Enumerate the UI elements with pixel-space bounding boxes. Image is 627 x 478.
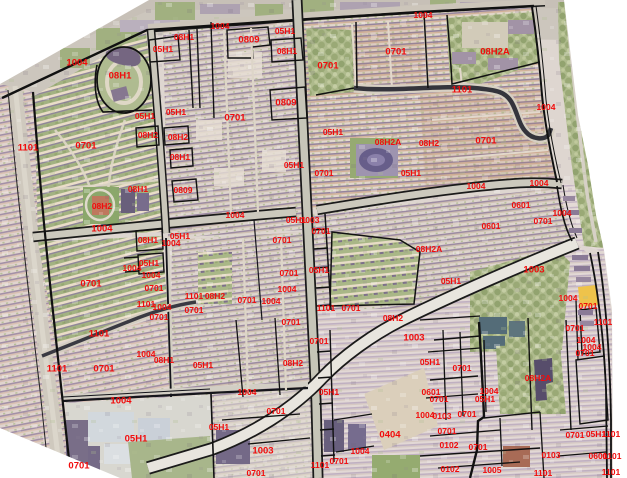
svg-text:1004: 1004 [226,210,245,220]
svg-text:0701: 0701 [80,278,102,289]
svg-text:0701: 0701 [247,468,266,478]
svg-text:08H2: 08H2 [283,358,304,368]
svg-text:0701: 0701 [312,226,331,236]
svg-text:0701: 0701 [282,317,301,327]
svg-text:0701: 0701 [273,235,292,245]
svg-text:1004: 1004 [467,181,486,191]
svg-text:1004: 1004 [66,57,88,68]
svg-text:1004: 1004 [153,302,172,312]
svg-text:1003: 1003 [252,445,273,456]
svg-text:0404: 0404 [379,429,401,440]
svg-text:1005: 1005 [483,465,502,475]
svg-text:1101: 1101 [602,467,621,477]
svg-text:08H2A: 08H2A [375,137,401,147]
svg-text:08H2: 08H2 [383,313,404,323]
svg-text:0809: 0809 [174,185,193,195]
svg-text:1004: 1004 [238,387,257,397]
svg-text:05H1: 05H1 [125,433,148,444]
svg-text:0701: 0701 [68,460,90,471]
svg-text:05H1: 05H1 [193,360,214,370]
svg-text:0701: 0701 [280,268,299,278]
svg-text:0601: 0601 [512,200,531,210]
svg-text:08H1: 08H1 [277,46,298,56]
svg-text:0701: 0701 [330,456,349,466]
svg-text:08H1: 08H1 [138,235,159,245]
svg-text:08H1: 08H1 [109,70,132,81]
svg-text:05H1: 05H1 [135,111,156,121]
svg-text:0701: 0701 [458,409,477,419]
svg-text:0809: 0809 [238,34,259,45]
svg-text:1004: 1004 [414,10,433,20]
svg-text:1101: 1101 [89,328,110,339]
svg-text:0101: 0101 [603,451,622,461]
svg-text:0701: 0701 [566,323,585,333]
svg-text:1003: 1003 [301,215,320,225]
svg-text:08H2A: 08H2A [525,373,551,383]
svg-text:0102: 0102 [440,440,459,450]
svg-text:1004: 1004 [91,223,113,234]
svg-text:1004: 1004 [530,178,549,188]
svg-text:0701: 0701 [75,140,97,151]
svg-text:0809: 0809 [275,97,296,108]
svg-text:08H2: 08H2 [419,138,440,148]
svg-text:1101: 1101 [602,429,621,439]
svg-text:0701: 0701 [224,112,246,123]
svg-text:1004: 1004 [559,293,578,303]
svg-text:0701: 0701 [579,301,598,311]
svg-text:1003: 1003 [403,332,424,343]
svg-text:05H1: 05H1 [284,160,305,170]
svg-text:0701: 0701 [385,46,407,57]
svg-text:05H1: 05H1 [323,127,344,137]
svg-text:08H2A: 08H2A [480,46,510,57]
svg-text:1101: 1101 [311,460,330,470]
svg-text:05H1: 05H1 [166,107,187,117]
svg-text:0103: 0103 [433,411,452,421]
svg-text:05H1: 05H1 [475,394,496,404]
svg-text:1004: 1004 [351,446,370,456]
svg-text:1101: 1101 [185,291,204,301]
svg-text:1101: 1101 [452,84,473,95]
svg-text:1004: 1004 [142,270,161,280]
svg-text:05H1: 05H1 [275,26,296,36]
svg-text:0701: 0701 [315,168,334,178]
svg-text:1004: 1004 [262,296,281,306]
svg-text:0701: 0701 [317,60,339,71]
svg-text:0701: 0701 [238,295,257,305]
svg-text:05H1: 05H1 [441,276,462,286]
svg-text:1101: 1101 [47,363,68,374]
svg-text:08H1: 08H1 [174,32,195,42]
svg-text:0701: 0701 [185,305,204,315]
svg-text:05H1: 05H1 [153,44,174,54]
svg-text:0701: 0701 [475,135,497,146]
svg-text:1101: 1101 [317,303,336,313]
svg-text:1101: 1101 [18,142,39,153]
svg-text:05H1: 05H1 [139,258,160,268]
svg-text:1003: 1003 [523,264,544,275]
svg-text:1004: 1004 [211,21,230,31]
svg-text:0701: 0701 [438,426,457,436]
svg-text:05H1: 05H1 [170,231,191,241]
svg-text:08H2: 08H2 [168,132,189,142]
svg-text:1004: 1004 [537,102,556,112]
svg-text:08H2: 08H2 [138,130,159,140]
svg-text:1004: 1004 [553,208,572,218]
svg-text:05H1: 05H1 [401,168,422,178]
svg-text:0701: 0701 [267,406,286,416]
svg-text:08H2: 08H2 [92,201,113,211]
svg-text:08H1: 08H1 [128,184,149,194]
svg-text:1004: 1004 [137,349,156,359]
svg-text:0103: 0103 [542,450,561,460]
svg-text:0601: 0601 [482,221,501,231]
svg-text:0701: 0701 [453,363,472,373]
svg-text:05H1: 05H1 [319,387,340,397]
svg-text:1101: 1101 [594,317,613,327]
svg-text:0701: 0701 [469,442,488,452]
svg-text:0701: 0701 [430,394,449,404]
svg-text:0701: 0701 [342,303,361,313]
svg-text:05H1: 05H1 [420,357,441,367]
svg-text:08H1: 08H1 [170,152,191,162]
svg-text:08H1: 08H1 [154,355,175,365]
svg-text:0701: 0701 [145,283,164,293]
svg-text:0102: 0102 [441,464,460,474]
svg-text:1101: 1101 [534,468,553,478]
svg-text:0701: 0701 [566,430,585,440]
svg-text:05H1: 05H1 [309,265,330,275]
svg-text:0701: 0701 [150,312,169,322]
svg-text:08H2A: 08H2A [416,244,442,254]
svg-text:05H1: 05H1 [209,422,230,432]
svg-text:1004: 1004 [123,263,142,273]
svg-text:0701: 0701 [93,363,115,374]
svg-text:0701: 0701 [310,336,329,346]
svg-text:0701: 0701 [576,348,595,358]
svg-text:08H2: 08H2 [205,291,226,301]
svg-text:1004: 1004 [110,395,132,406]
svg-text:1004: 1004 [278,284,297,294]
svg-text:0701: 0701 [534,216,553,226]
